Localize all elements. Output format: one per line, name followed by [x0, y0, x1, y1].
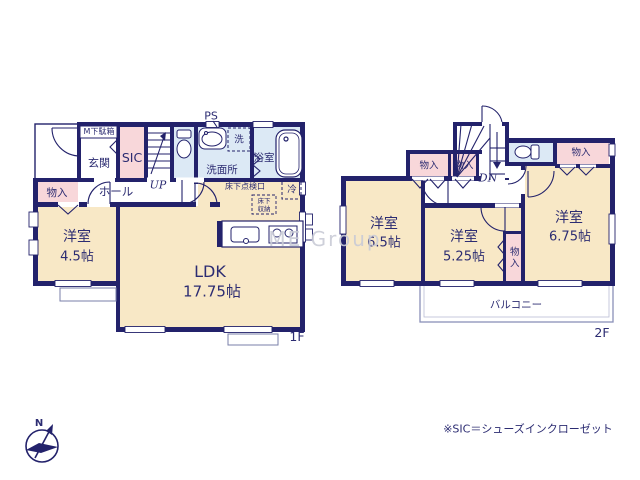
kitchen-sink-icon [231, 227, 259, 244]
label-stairs-down: DN [479, 173, 497, 184]
label-western2f-b-name: 洋室 [450, 230, 478, 244]
label-western2f-c-name: 洋室 [555, 211, 583, 225]
label-closet-1f: 物入 [47, 188, 68, 199]
label-ldk-name: LDK [194, 264, 226, 280]
compass-north-label: N [35, 419, 43, 429]
label-fridge: 冷 [287, 185, 297, 195]
label-ldk-size: 17.75帖 [183, 285, 241, 300]
toilet-icon [515, 145, 539, 159]
label-closet2f-a: 物入 [419, 161, 438, 171]
label-western1f-name: 洋室 [63, 230, 91, 244]
label-bathroom: 浴室 [254, 153, 275, 164]
washbasin-icon [199, 128, 226, 149]
compass-icon [26, 424, 58, 462]
label-western1f-size: 4.5帖 [60, 251, 94, 264]
bathtub-icon [276, 130, 302, 177]
label-stairs-up: UP [150, 180, 167, 191]
watermark: ME Group [268, 229, 381, 249]
label-floor2: 2F [594, 327, 609, 340]
stairs-up-icon [146, 132, 172, 174]
label-floor1: 1F [289, 331, 304, 344]
label-hall: ホール [99, 186, 134, 198]
label-washer: 洗 [234, 135, 244, 145]
label-underfloor-storage-2: 収納 [258, 206, 271, 213]
label-shoe-closet: SIC [122, 152, 142, 165]
label-western2f-b-size: 5.25帖 [443, 251, 485, 264]
label-western2f-c-size: 6.75帖 [549, 231, 591, 244]
label-balcony: バルコニー [490, 300, 542, 311]
label-shoe-box: M下駄箱 [84, 128, 115, 136]
label-closet2f-c: 物入 [571, 148, 590, 158]
label-underfloor-hatch: 床下点検口 [225, 183, 265, 191]
label-pipe-space: PS [204, 111, 218, 122]
label-closet2f-d: 物入 [508, 247, 518, 270]
label-underfloor-storage-1: 床下 [258, 198, 271, 205]
floorplan-page: PS M下駄箱 玄関 SIC UP 洗面所 洗 浴室 物入 ホール 床下点検口 … [0, 0, 640, 480]
toilet-icon [177, 130, 191, 158]
label-washroom: 洗面所 [206, 165, 238, 176]
label-entrance: 玄関 [88, 158, 110, 169]
label-closet2f-b: 物入 [454, 161, 473, 171]
footnote-sic: ※SIC＝シューズインクローゼット [443, 424, 613, 435]
